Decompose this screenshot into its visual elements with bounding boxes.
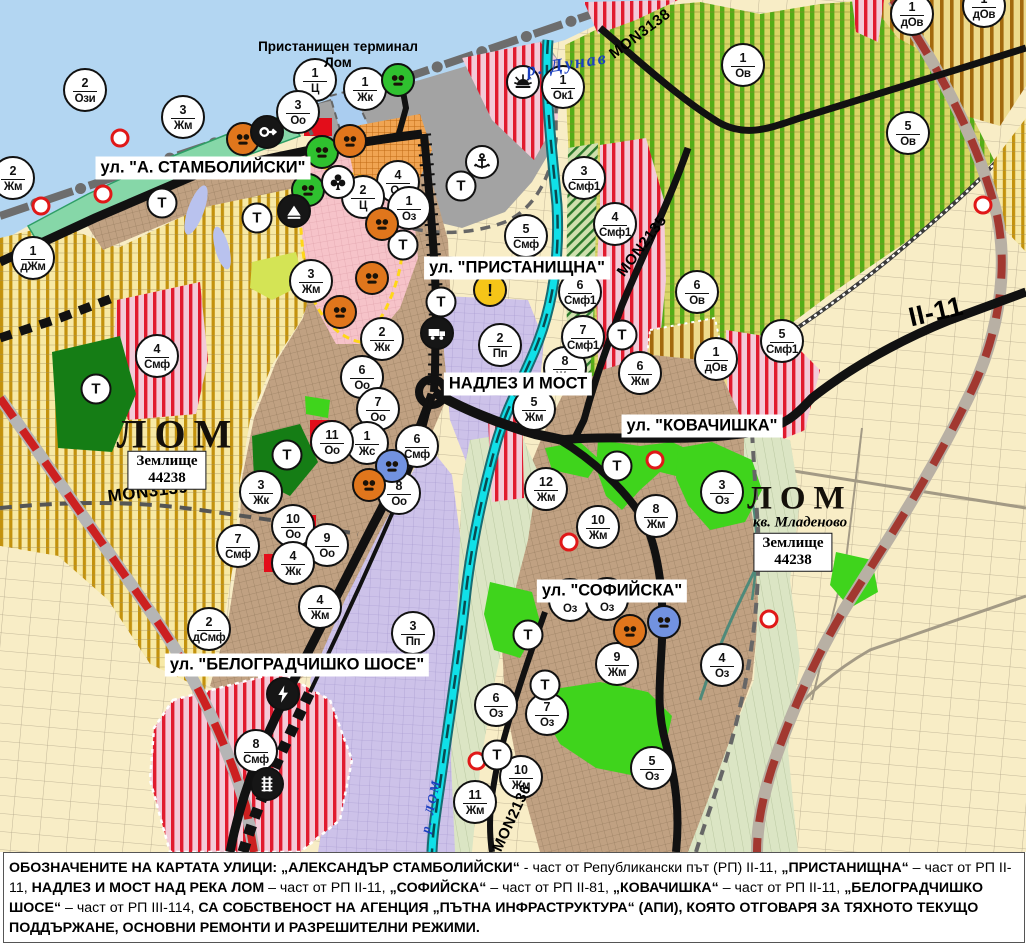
note-segment: – част от РП II-81,	[486, 880, 612, 896]
note-segment: „СОФИЙСКА“	[390, 880, 487, 896]
zoning-map-page: 2Ози1Ц3Оо1Жк1Ок13Жм2Жм1дЖм4Оо2Ц1Оз3Смф15…	[0, 0, 1026, 943]
ownership-note: ОБОЗНАЧЕНИТЕ НА КАРТАТА УЛИЦИ: „АЛЕКСАНД…	[3, 852, 1025, 943]
note-segment: НАДЛЕЗ И МОСТ НАД РЕКА ЛОМ	[32, 880, 265, 896]
note-segment: – част от РП II-11,	[719, 880, 844, 896]
note-segment: „ПРИСТАНИЩНА“	[781, 860, 908, 876]
note-segment: – част от РП II-11,	[264, 880, 389, 896]
note-segment: „КОВАЧИШКА“	[613, 880, 719, 896]
note-segment: – част от РП III-114,	[61, 900, 198, 916]
map-canvas: 2Ози1Ц3Оо1Жк1Ок13Жм2Жм1дЖм4Оо2Ц1Оз3Смф15…	[0, 0, 1026, 852]
map-base-graphics	[0, 0, 1026, 852]
note-segment: ОБОЗНАЧЕНИТЕ НА КАРТАТА УЛИЦИ: „АЛЕКСАНД…	[9, 860, 520, 876]
note-segment: - част от Републикански път (РП) II-11,	[520, 860, 781, 876]
